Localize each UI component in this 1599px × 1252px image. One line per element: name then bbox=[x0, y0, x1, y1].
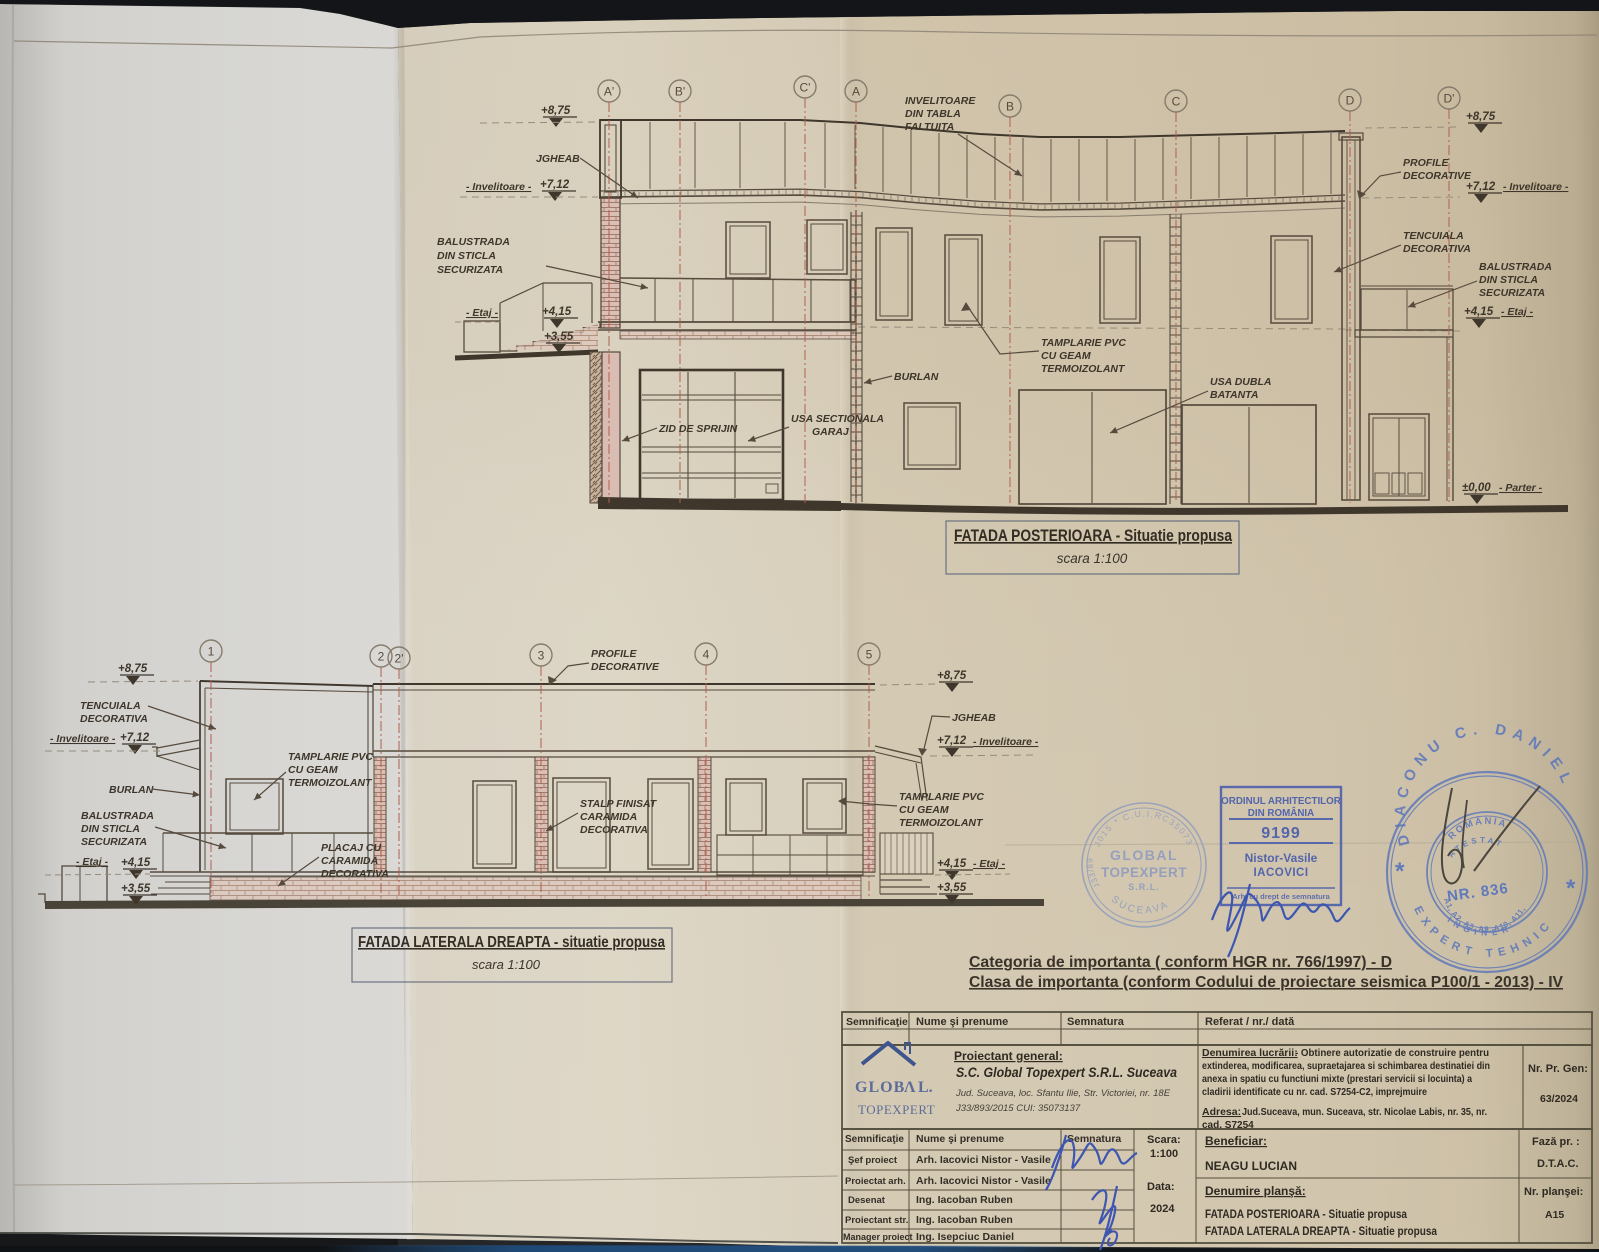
svg-text:Arh. Iacovici Nistor - Vasile: Arh. Iacovici Nistor - Vasile bbox=[916, 1154, 1051, 1166]
svg-text:Data:: Data: bbox=[1147, 1181, 1175, 1193]
svg-text:FATADA POSTERIOARA - Situatie: FATADA POSTERIOARA - Situatie propusa bbox=[954, 527, 1233, 545]
svg-text:2': 2' bbox=[395, 652, 404, 666]
svg-text:TOPEXPERT: TOPEXPERT bbox=[1101, 865, 1187, 880]
svg-text:+8,75: +8,75 bbox=[541, 105, 571, 117]
svg-text:Proiectant general:: Proiectant general: bbox=[954, 1049, 1063, 1063]
svg-text:SECURIZATA: SECURIZATA bbox=[81, 836, 147, 848]
svg-text:TERMOIZOLANT: TERMOIZOLANT bbox=[1041, 363, 1126, 375]
svg-text:Nume şi prenume: Nume şi prenume bbox=[916, 1133, 1004, 1145]
svg-text:DECORATIVA: DECORATIVA bbox=[80, 713, 148, 725]
svg-text:ZID DE SPRIJIN: ZID DE SPRIJIN bbox=[658, 423, 738, 435]
svg-text:Denumirea lucrării:: Denumirea lucrării: bbox=[1202, 1047, 1298, 1059]
svg-text:Categoria de importanta ( conf: Categoria de importanta ( conform HGR nr… bbox=[969, 954, 1392, 971]
svg-text:DIN STICLA: DIN STICLA bbox=[81, 823, 140, 835]
svg-text:DECORATIVA: DECORATIVA bbox=[321, 868, 389, 880]
svg-text:- Invelitoare -: - Invelitoare - bbox=[973, 736, 1039, 748]
svg-text:*: * bbox=[1395, 858, 1405, 885]
svg-text:BALUSTRADA: BALUSTRADA bbox=[437, 236, 510, 248]
svg-text:- Parter -: - Parter - bbox=[1499, 482, 1543, 494]
svg-text:9199: 9199 bbox=[1261, 825, 1301, 842]
svg-text:Jud. Suceava, loc. Sfantu Ilie: Jud. Suceava, loc. Sfantu Ilie, Str. Vic… bbox=[955, 1088, 1171, 1099]
svg-text:GLOBAL: GLOBAL bbox=[1110, 847, 1178, 863]
svg-text:extinderea, modificarea, supra: extinderea, modificarea, supraetajarea s… bbox=[1202, 1061, 1490, 1072]
svg-text:D: D bbox=[1346, 94, 1355, 108]
svg-text:B': B' bbox=[675, 85, 685, 99]
svg-text:- Obtinere autorizatie de cons: - Obtinere autorizatie de construire pen… bbox=[1295, 1048, 1489, 1059]
svg-text:+4,15: +4,15 bbox=[937, 858, 967, 870]
svg-text:Semnificaţie: Semnificaţie bbox=[845, 1134, 904, 1145]
svg-text:FATADA LATERALA DREAPTA - Situ: FATADA LATERALA DREAPTA - Situatie propu… bbox=[1205, 1224, 1437, 1238]
svg-text:BATANTA: BATANTA bbox=[1210, 389, 1258, 401]
svg-text:Desenat: Desenat bbox=[848, 1195, 886, 1206]
svg-text:Semnificaţie: Semnificaţie bbox=[846, 1016, 908, 1028]
svg-text:Jud.Suceava, mun. Suceava, str: Jud.Suceava, mun. Suceava, str. Nicolae … bbox=[1242, 1107, 1487, 1118]
svg-text:FALTUITA: FALTUITA bbox=[905, 121, 954, 133]
svg-text:+4,15: +4,15 bbox=[121, 857, 151, 869]
svg-text:Nume şi prenume: Nume şi prenume bbox=[916, 1016, 1008, 1028]
svg-text:DECORATIVE: DECORATIVE bbox=[591, 661, 660, 673]
svg-text:63/2024: 63/2024 bbox=[1540, 1093, 1578, 1105]
svg-text:SECURIZATA: SECURIZATA bbox=[437, 264, 503, 276]
svg-text:STALP FINISAT: STALP FINISAT bbox=[580, 798, 658, 810]
svg-text:Ing. Iacoban Ruben: Ing. Iacoban Ruben bbox=[916, 1214, 1013, 1226]
svg-text:2024: 2024 bbox=[1150, 1203, 1175, 1215]
svg-text:Λ: Λ bbox=[904, 1079, 916, 1096]
svg-text:+3,55: +3,55 bbox=[121, 883, 151, 895]
svg-text:TENCUIALA: TENCUIALA bbox=[1403, 230, 1464, 242]
svg-text:BALUSTRADA: BALUSTRADA bbox=[1479, 261, 1552, 273]
svg-text:DECORATIVA: DECORATIVA bbox=[1403, 243, 1471, 255]
svg-text:DIN STICLA: DIN STICLA bbox=[437, 250, 496, 262]
svg-text:Denumire planşă:: Denumire planşă: bbox=[1205, 1184, 1306, 1198]
svg-text:GARAJ: GARAJ bbox=[812, 426, 850, 438]
svg-text:GLOB: GLOB bbox=[855, 1079, 905, 1096]
svg-text:NEAGU LUCIAN: NEAGU LUCIAN bbox=[1205, 1159, 1297, 1173]
svg-text:BURLAN: BURLAN bbox=[894, 371, 939, 383]
svg-text:anexa in spatiu cu functiuni m: anexa in spatiu cu functiuni mixte (pres… bbox=[1202, 1074, 1472, 1085]
svg-text:A: A bbox=[852, 85, 860, 99]
svg-text:FATADA POSTERIOARA - Situatie: FATADA POSTERIOARA - Situatie propusa bbox=[1205, 1207, 1407, 1221]
svg-text:+4,15: +4,15 bbox=[542, 306, 572, 318]
svg-text:Adresa:: Adresa: bbox=[1202, 1106, 1241, 1118]
svg-text:INVELITOARE: INVELITOARE bbox=[905, 95, 976, 107]
svg-text:Ing. Iacoban Ruben: Ing. Iacoban Ruben bbox=[916, 1194, 1013, 1206]
svg-text:+8,75: +8,75 bbox=[1466, 111, 1496, 123]
svg-text:Nistor-Vasile: Nistor-Vasile bbox=[1245, 851, 1318, 865]
svg-text:PROFILE: PROFILE bbox=[591, 648, 637, 660]
svg-text:D.T.A.C.: D.T.A.C. bbox=[1537, 1158, 1579, 1170]
svg-text:CU GEAM: CU GEAM bbox=[288, 764, 338, 776]
svg-text:+8,75: +8,75 bbox=[937, 670, 967, 682]
svg-text:TERMOIZOLANT: TERMOIZOLANT bbox=[288, 777, 373, 789]
svg-text:- Etaj -: - Etaj - bbox=[76, 856, 109, 868]
svg-text:- Invelitoare -: - Invelitoare - bbox=[466, 181, 532, 193]
svg-text:CU GEAM: CU GEAM bbox=[899, 804, 949, 816]
svg-text:DIN ROMÂNIA: DIN ROMÂNIA bbox=[1248, 807, 1314, 819]
svg-text:Nr. Pr. Gen:: Nr. Pr. Gen: bbox=[1528, 1063, 1588, 1075]
svg-text:Manager proiect: Manager proiect bbox=[843, 1232, 913, 1242]
svg-text:Fază pr. :: Fază pr. : bbox=[1532, 1136, 1580, 1148]
svg-text:ORDINUL ARHITECTILOR: ORDINUL ARHITECTILOR bbox=[1221, 796, 1341, 807]
svg-text:+7,12: +7,12 bbox=[120, 732, 150, 744]
svg-text:FATADA LATERALA DREAPTA - situ: FATADA LATERALA DREAPTA - situatie propu… bbox=[358, 934, 665, 951]
svg-text:C': C' bbox=[800, 81, 811, 95]
svg-text:+7,12: +7,12 bbox=[937, 735, 967, 747]
svg-text:CARAMIDA: CARAMIDA bbox=[580, 811, 637, 823]
svg-text:+4,15: +4,15 bbox=[1464, 306, 1494, 318]
svg-text:TAMPLARIE PVC: TAMPLARIE PVC bbox=[899, 791, 984, 803]
svg-text:Nr. planşei:: Nr. planşei: bbox=[1524, 1186, 1583, 1198]
svg-text:B: B bbox=[1006, 100, 1014, 114]
svg-text:Referat / nr./ dată: Referat / nr./ dată bbox=[1205, 1016, 1295, 1028]
svg-text:1: 1 bbox=[208, 645, 215, 659]
svg-text:JGHEAB: JGHEAB bbox=[536, 153, 580, 165]
svg-text:- Invelitoare -: - Invelitoare - bbox=[50, 733, 116, 745]
svg-text:+8,75: +8,75 bbox=[118, 663, 148, 675]
svg-text:L.: L. bbox=[918, 1079, 933, 1096]
svg-text:PLACAJ CU: PLACAJ CU bbox=[321, 842, 382, 854]
svg-text:D': D' bbox=[1444, 92, 1455, 106]
svg-text:scara 1:100: scara 1:100 bbox=[472, 957, 541, 972]
svg-text:USA SECTIONALA: USA SECTIONALA bbox=[791, 413, 884, 425]
svg-text:+3,55: +3,55 bbox=[544, 331, 574, 343]
svg-text:Semnatura: Semnatura bbox=[1067, 1016, 1125, 1028]
svg-text:- Etaj -: - Etaj - bbox=[466, 307, 499, 319]
svg-text:C: C bbox=[1172, 95, 1181, 109]
svg-text:Proiectant str.: Proiectant str. bbox=[845, 1215, 908, 1226]
svg-text:1:100: 1:100 bbox=[1150, 1148, 1178, 1160]
svg-text:+7,12: +7,12 bbox=[1466, 181, 1496, 193]
svg-text:5: 5 bbox=[866, 648, 873, 662]
svg-text:Beneficiar:: Beneficiar: bbox=[1205, 1134, 1267, 1148]
svg-text:DECORATIVE: DECORATIVE bbox=[1403, 170, 1472, 182]
svg-text:A': A' bbox=[604, 85, 614, 99]
svg-text:- Invelitoare -: - Invelitoare - bbox=[1503, 181, 1569, 193]
svg-text:+7,12: +7,12 bbox=[540, 179, 570, 191]
svg-text:S.C. Global Topexpert S.R.L. S: S.C. Global Topexpert S.R.L. Suceava bbox=[956, 1065, 1177, 1080]
svg-text:Semnatura: Semnatura bbox=[1067, 1133, 1121, 1145]
svg-text:SECURIZATA: SECURIZATA bbox=[1479, 287, 1545, 299]
svg-text:Ing. Isepciuc Daniel: Ing. Isepciuc Daniel bbox=[916, 1231, 1014, 1243]
svg-text:USA DUBLA: USA DUBLA bbox=[1210, 376, 1271, 388]
svg-text:TERMOIZOLANT: TERMOIZOLANT bbox=[899, 817, 984, 829]
svg-text:DIN TABLA: DIN TABLA bbox=[905, 108, 961, 120]
svg-text:+3,55: +3,55 bbox=[937, 882, 967, 894]
svg-text:CU GEAM: CU GEAM bbox=[1041, 350, 1091, 362]
svg-text:3: 3 bbox=[538, 649, 545, 663]
svg-text:PROFILE: PROFILE bbox=[1403, 157, 1449, 169]
svg-text:BALUSTRADA: BALUSTRADA bbox=[81, 810, 154, 822]
svg-text:- Etaj -: - Etaj - bbox=[973, 858, 1006, 870]
svg-text:CARAMIDA: CARAMIDA bbox=[321, 855, 378, 867]
svg-text:*: * bbox=[1566, 875, 1576, 902]
svg-text:S.R.L.: S.R.L. bbox=[1128, 882, 1160, 892]
svg-text:J33/893/2015 CUI: 35073137: J33/893/2015 CUI: 35073137 bbox=[955, 1103, 1081, 1114]
svg-text:2: 2 bbox=[378, 650, 385, 664]
svg-text:- Etaj -: - Etaj - bbox=[1501, 306, 1534, 318]
svg-text:±0,00: ±0,00 bbox=[1462, 482, 1491, 494]
svg-text:Proiectat arh.: Proiectat arh. bbox=[845, 1176, 906, 1187]
svg-text:IACOVICI: IACOVICI bbox=[1253, 867, 1308, 879]
svg-text:TENCUIALA: TENCUIALA bbox=[80, 700, 141, 712]
svg-text:cladirii identificate cu nr. c: cladirii identificate cu nr. cad. S7254-… bbox=[1202, 1087, 1427, 1098]
svg-text:Clasa de importanta (conform: Clasa de importanta (conform Codului de … bbox=[969, 974, 1564, 991]
svg-text:TOPEXPERT: TOPEXPERT bbox=[858, 1102, 935, 1117]
svg-text:scara 1:100: scara 1:100 bbox=[1057, 551, 1128, 566]
svg-text:Arh. Iacovici Nistor - Vasile: Arh. Iacovici Nistor - Vasile bbox=[916, 1175, 1051, 1187]
svg-text:BURLAN: BURLAN bbox=[109, 784, 154, 796]
svg-text:Şef proiect: Şef proiect bbox=[848, 1155, 898, 1166]
svg-text:DIN STICLA: DIN STICLA bbox=[1479, 274, 1538, 286]
svg-text:TAMPLARIE PVC: TAMPLARIE PVC bbox=[288, 751, 373, 763]
svg-text:DECORATIVA: DECORATIVA bbox=[580, 824, 648, 836]
svg-text:JGHEAB: JGHEAB bbox=[952, 712, 996, 724]
svg-text:Scara:: Scara: bbox=[1147, 1134, 1181, 1146]
svg-text:TAMPLARIE PVC: TAMPLARIE PVC bbox=[1041, 337, 1126, 349]
svg-text:4: 4 bbox=[703, 648, 710, 662]
svg-text:A15: A15 bbox=[1545, 1209, 1564, 1221]
